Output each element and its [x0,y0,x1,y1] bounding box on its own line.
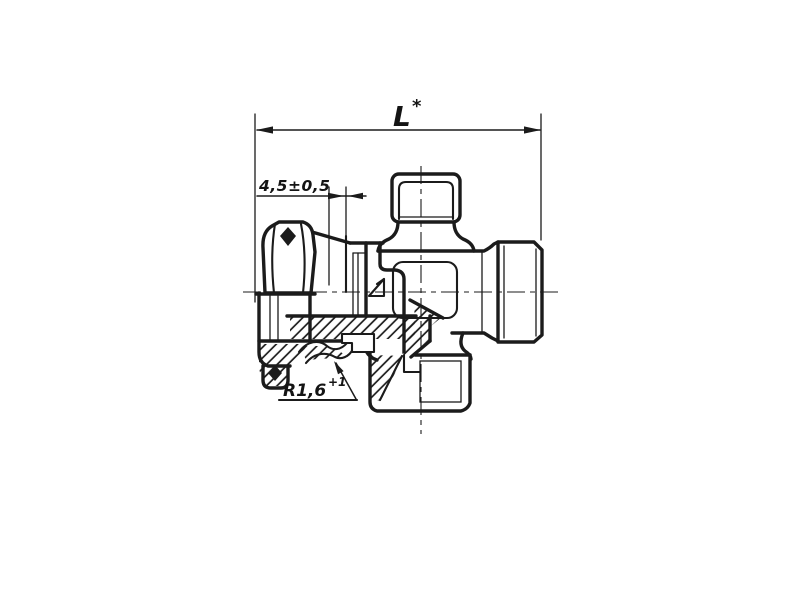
body-bottom-shoulder [452,333,498,341]
hatch-nut-block [259,344,305,386]
technical-drawing: L * 4,5±0,5 R1,6 +1 [0,0,800,600]
top-port-neck-right [454,222,474,251]
offset-dimension-label: 4,5±0,5 [258,177,330,195]
length-arrow-left [256,126,273,133]
length-arrow-right [524,126,541,133]
body-top-shoulder [378,242,498,251]
washer-section-block [342,334,374,352]
radius-dimension-label: R1,6 [283,381,326,401]
offset-arrow-outside [348,193,363,200]
radius-dimension-sup: +1 [328,375,346,389]
drawing-page: L * 4,5±0,5 R1,6 +1 [0,0,800,600]
length-dimension-label: L [393,100,411,133]
top-port [378,174,474,251]
radius-leader-arrow [334,361,344,374]
length-dimension-sup: * [412,96,422,117]
tube-top-slope [312,232,350,243]
